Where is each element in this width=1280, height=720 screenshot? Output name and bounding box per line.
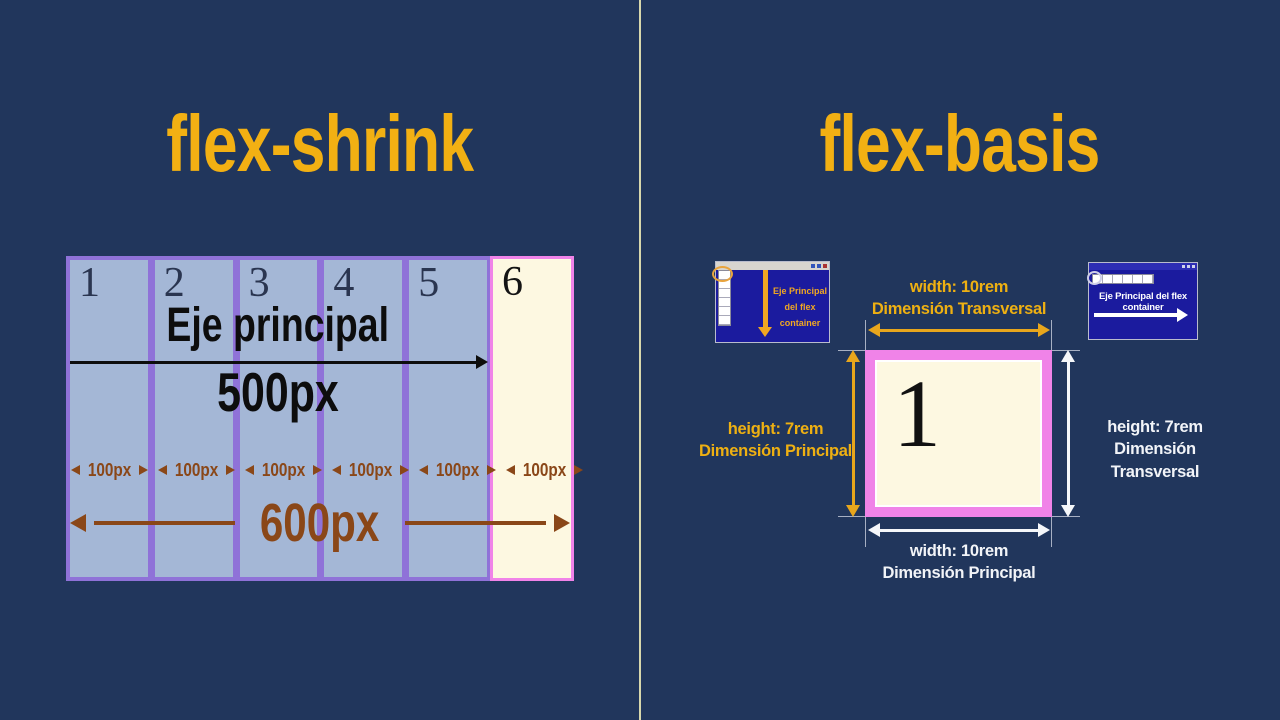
window-control-icon	[1192, 265, 1195, 268]
item-width-label: 100px	[153, 458, 240, 482]
dim-right-arrow-icon	[1061, 350, 1075, 517]
flex-shrink-container: 1 2 3 4 5 6 Eje principal 500px	[66, 256, 574, 581]
width-arrow-icon: 100px	[332, 458, 409, 482]
thumbnail-content: Eje Principal del flex container	[716, 270, 829, 342]
width-arrow-icon: 100px	[419, 458, 496, 482]
dim-top-arrow-icon	[868, 323, 1050, 337]
item-width-labels-row: 100px 100px 100px 100px 100px 100px	[66, 458, 574, 482]
thumbnail-caption: Eje Principal del flex container	[772, 283, 828, 332]
container-total-width-label: 600px	[260, 496, 379, 550]
flex-item-number: 2	[155, 260, 233, 304]
thumbnail-column-flow: Eje Principal del flex container	[715, 261, 830, 343]
flex-shrink-panel: flex-shrink 1 2 3 4 5 6 Eje principal	[0, 0, 640, 720]
right-arrow-icon	[1094, 313, 1178, 317]
item-width-label: 100px	[240, 458, 327, 482]
dim-bottom-label: width: 10rem Dimensión Principal	[850, 540, 1068, 585]
thumbnail-row-flow: Eje Principal del flex container	[1088, 262, 1198, 340]
highlight-circle-icon	[1087, 271, 1102, 285]
main-axis-arrow-icon	[70, 355, 488, 369]
window-control-icon	[1182, 265, 1185, 268]
flex-item-number: 4	[324, 260, 402, 304]
dim-bottom-arrow-icon	[868, 523, 1050, 537]
flex-basis-item: 1	[865, 350, 1052, 517]
flex-item-number: 3	[240, 260, 318, 304]
flex-item-number: 1	[875, 360, 1042, 459]
thumbnail-titlebar	[1089, 263, 1197, 270]
container-total-width: 600px	[70, 500, 570, 546]
item-width-label: 100px	[414, 458, 501, 482]
width-arrow-icon: 100px	[71, 458, 148, 482]
item-width-label: 100px	[501, 458, 588, 482]
item-width-label: 100px	[327, 458, 414, 482]
dim-top-label: width: 10rem Dimensión Transversal	[850, 276, 1068, 321]
down-arrow-icon	[763, 270, 768, 328]
thumbnail-titlebar	[716, 262, 829, 270]
flex-basis-panel: flex-basis Eje Principal del flex contai…	[640, 0, 1280, 720]
window-control-icon	[1187, 265, 1190, 268]
item-width-label: 100px	[66, 458, 153, 482]
window-control-icon	[811, 264, 815, 268]
extension-line	[1051, 320, 1052, 350]
dim-left-arrow-icon	[846, 350, 860, 517]
flex-item-number: 5	[409, 260, 487, 304]
width-arrow-icon: 100px	[158, 458, 235, 482]
dim-left-label: height: 7rem Dimensión Principal	[698, 418, 853, 463]
flex-item-number: 6	[493, 259, 571, 303]
highlight-circle-icon	[712, 266, 733, 282]
extension-line	[865, 320, 866, 350]
flex-basis-title: flex-basis	[640, 98, 1280, 190]
thumbnail-content: Eje Principal del flex container	[1089, 270, 1197, 339]
flex-item-number: 1	[70, 260, 148, 304]
flex-shrink-title: flex-shrink	[0, 98, 640, 190]
flexbox-infographic: flex-shrink 1 2 3 4 5 6 Eje principal	[0, 0, 1280, 720]
window-control-icon	[817, 264, 821, 268]
width-arrow-icon: 100px	[506, 458, 583, 482]
dim-right-label: height: 7rem Dimensión Transversal	[1075, 416, 1235, 483]
width-arrow-icon: 100px	[245, 458, 322, 482]
window-control-icon	[823, 264, 827, 268]
